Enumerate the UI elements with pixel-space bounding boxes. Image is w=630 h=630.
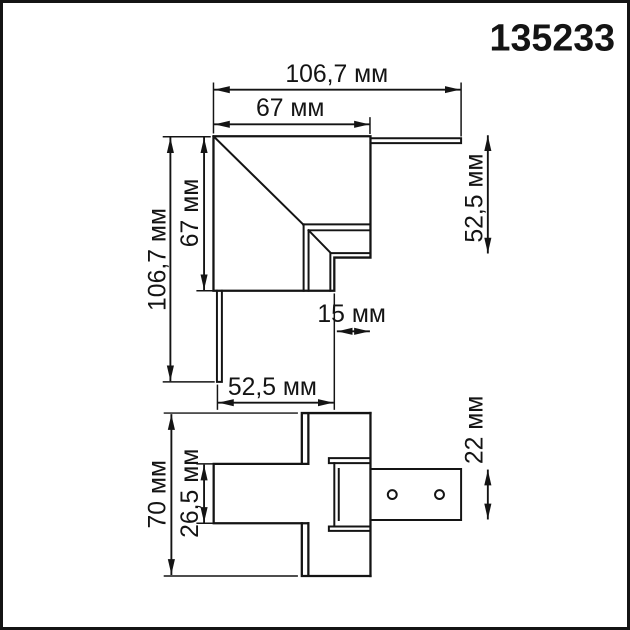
dim-label-bar-height: 26,5 мм — [177, 449, 204, 538]
junction-inner-walls — [334, 463, 338, 526]
track-stub-right — [370, 138, 461, 143]
inner-step-lines — [330, 253, 370, 291]
part-number: 135233 — [490, 17, 616, 59]
dim-label-bottom-width: 52,5 мм — [228, 374, 317, 401]
track-bar-right — [370, 469, 461, 520]
miter-diagonal — [213, 136, 303, 224]
top-view: 106,7 мм 67 мм 106,7 мм 67 мм 52,5 мм 15… — [144, 61, 488, 409]
technical-drawing: 106,7 мм 67 мм 106,7 мм 67 мм 52,5 мм 15… — [3, 3, 627, 627]
dim-label-side-total-height: 70 мм — [144, 460, 171, 528]
track-stub-bottom — [217, 291, 222, 382]
dim-label-track-height: 22 мм — [461, 396, 488, 464]
mounting-hole — [435, 490, 444, 499]
mounting-hole — [388, 490, 397, 499]
dim-label-total-height: 106,7 мм — [144, 208, 171, 311]
drawing-sheet: 106,7 мм 67 мм 106,7 мм 67 мм 52,5 мм 15… — [0, 0, 630, 630]
dim-label-body-width: 67 мм — [256, 95, 324, 122]
middle-bar — [214, 464, 309, 523]
dim-label-body-height: 67 мм — [177, 179, 204, 247]
inner-corner-diagonal — [309, 230, 331, 253]
dim-label-notch-width: 15 мм — [317, 301, 385, 328]
dim-label-total-width: 106,7 мм — [285, 61, 388, 88]
dim-label-right-height: 52,5 мм — [461, 154, 488, 243]
side-view: 70 мм 26,5 мм 22 мм — [144, 396, 488, 576]
column-top-tab — [302, 413, 371, 464]
